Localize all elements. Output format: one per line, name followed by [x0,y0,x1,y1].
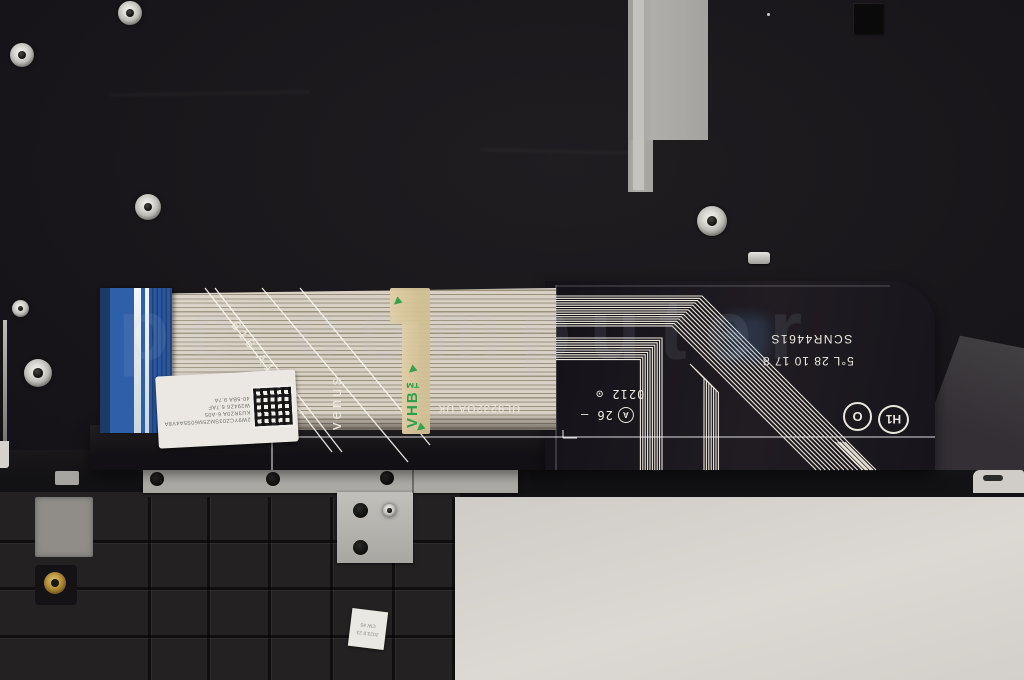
screw [135,194,161,220]
bracket-hole [353,540,368,555]
connector-stripe [134,288,141,433]
screw [12,300,29,317]
foam-pad [35,497,93,557]
circled-a-mark: A [618,407,634,423]
touchpad-tab [973,470,1024,493]
screw [697,206,727,236]
segment-code-line2: A 26 — [580,407,634,423]
edge-sliver [0,441,9,468]
bracket-screw [383,504,396,517]
segment-code-line1: 0212 ⊙ [595,387,644,401]
screw [118,1,142,25]
bar-tab [55,471,79,485]
photo-stage: CW #5 2023.8 23 [0,0,1024,680]
qr-code [253,387,293,427]
mini-label: CW #5 2023.8 23 [348,608,388,650]
bracket-hole [380,471,394,485]
grid-rib [0,635,460,638]
mini-label-line: CW #5 [361,621,377,629]
foil-tape-stripe [633,0,644,190]
mini-label-line: 2023.8 23 [356,629,379,638]
circled-h1-mark: H1 [878,405,909,434]
vhb-brand-text: VHB™ [404,352,421,428]
touchpad-area [455,497,1024,680]
cert-code-text: UL9232OA UK [437,402,520,414]
serial-text: SCNR4461S [770,332,852,346]
screw [10,43,34,67]
speck [767,13,770,16]
rubber-pad [853,3,883,34]
circled-o-mark: O [843,402,872,431]
metal-clip [748,252,770,264]
vhb-tape-top [390,288,430,324]
codename-text: venus [328,328,345,430]
brass-insert [44,572,66,594]
qr-label-text: 40-5BA 9.7A W294Z6 6.7AF KU3RZ0A 6-A05 2… [161,394,250,427]
date-code-text: 5°L 28 10 17 8 [762,354,854,368]
bracket-hole [353,503,368,518]
metal-bracket-extension [337,492,413,563]
connector-edge [100,288,110,433]
tab-slot [983,475,1003,481]
bracket-hole [266,472,280,486]
bracket-hole [150,472,164,486]
edge-metal-strip [3,320,7,460]
segment-code-text: 26 — [580,408,613,422]
screw [24,359,52,387]
